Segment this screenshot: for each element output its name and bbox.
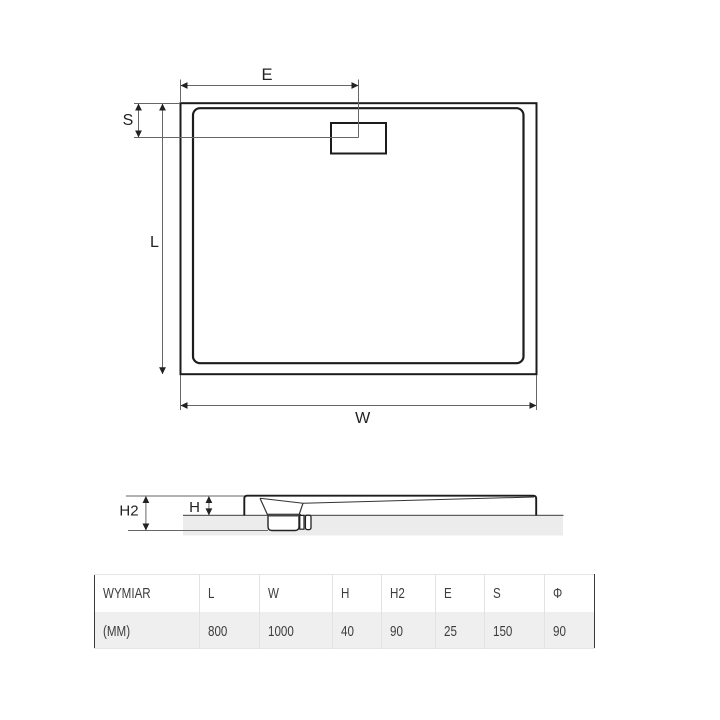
svg-text:S: S	[123, 112, 134, 129]
svg-text:H2: H2	[119, 503, 138, 520]
svg-text:L: L	[150, 234, 159, 251]
svg-text:W: W	[355, 410, 371, 427]
svg-text:H: H	[189, 499, 200, 516]
svg-text:E: E	[261, 66, 272, 84]
